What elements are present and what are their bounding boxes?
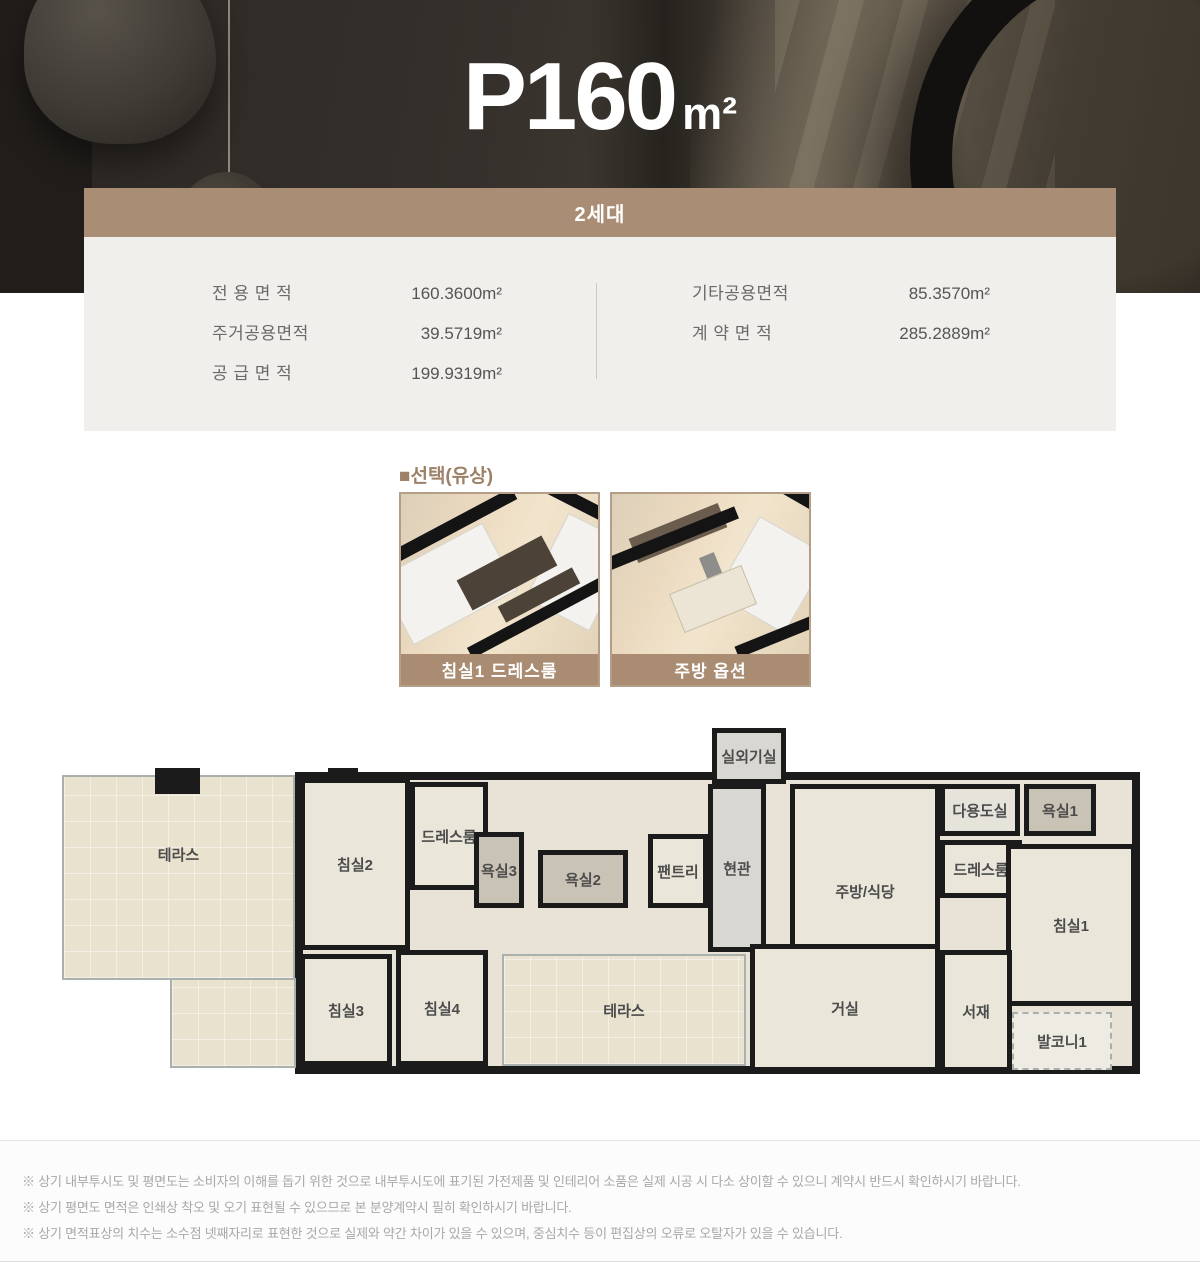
area-label: 전 용 면 적	[212, 279, 292, 304]
room-label: 발코니1	[1037, 1031, 1087, 1052]
room-label: 욕실3	[481, 860, 517, 881]
room-침실1: 침실1	[1006, 844, 1136, 1006]
room-발코니1: 발코니1	[1012, 1012, 1112, 1070]
area-label: 주거공용면적	[212, 319, 309, 344]
area-label: 기타공용면적	[692, 279, 789, 304]
area-table: 전 용 면 적160.3600m²주거공용면적39.5719m²공 급 면 적1…	[84, 237, 1116, 431]
room-욕실3: 욕실3	[474, 832, 524, 908]
room-label: 침실4	[424, 998, 460, 1019]
room-label: 욕실1	[1042, 800, 1078, 821]
unit-count-header: 2세대	[84, 188, 1116, 237]
room-침실2: 침실2	[300, 778, 410, 950]
room-label: 테라스	[603, 1000, 644, 1021]
room-label: 침실2	[337, 854, 373, 875]
room-서재: 서재	[940, 950, 1012, 1072]
page-title-main: P160	[463, 43, 675, 150]
room-label: 침실3	[328, 1000, 364, 1021]
room-label: 팬트리	[657, 861, 698, 882]
room-실외기실: 실외기실	[712, 728, 786, 784]
room-침실4: 침실4	[396, 950, 488, 1066]
room-label: 침실1	[1053, 915, 1089, 936]
floorplan: 테라스침실2드레스룸욕실3욕실2팬트리현관실외기실주방/식당다용도실드레스룸욕실…	[50, 722, 1150, 1087]
room-label: 서재	[962, 1001, 990, 1022]
option-card-kitchen[interactable]: 주방 옵션	[610, 492, 811, 687]
room-욕실1: 욕실1	[1024, 784, 1096, 836]
option-label: 침실1 드레스룸	[401, 654, 598, 685]
room-테라스: 테라스	[502, 954, 746, 1066]
option-label: 주방 옵션	[612, 654, 809, 685]
area-row: 전 용 면 적160.3600m²	[212, 279, 502, 304]
room-label: 주방/식당	[835, 881, 894, 902]
area-label: 계 약 면 적	[692, 319, 772, 344]
room-다용도실: 다용도실	[940, 784, 1020, 836]
option-render-kitchen	[612, 494, 809, 654]
render-island	[669, 565, 757, 633]
wall-column-block	[155, 768, 200, 794]
room-label: 욕실2	[565, 869, 601, 890]
page-title: P160m²	[0, 42, 1200, 152]
room-label: 드레스룸	[421, 826, 476, 847]
disclaimer-note: ※ 상기 내부투시도 및 평면도는 소비자의 이해를 돕기 위한 것으로 내부투…	[22, 1169, 1176, 1195]
area-value: 285.2889m²	[899, 324, 990, 344]
area-row: 계 약 면 적285.2889m²	[692, 319, 990, 344]
option-card-bedroom1-dressroom[interactable]: 침실1 드레스룸	[399, 492, 600, 687]
room-테라스: 테라스	[62, 775, 295, 980]
options-section-title: ■선택(유상)	[399, 461, 493, 488]
page-title-unit: m²	[682, 88, 737, 139]
area-value: 160.3600m²	[411, 284, 502, 304]
page: P160m² 2세대 전 용 면 적160.3600m²주거공용면적39.571…	[0, 0, 1200, 1262]
room-label: 테라스	[158, 844, 199, 865]
disclaimer-note: ※ 상기 평면도 면적은 인쇄상 착오 및 오기 표현될 수 있으므로 본 분양…	[22, 1195, 1176, 1221]
area-info-card: 2세대 전 용 면 적160.3600m²주거공용면적39.5719m²공 급 …	[84, 188, 1116, 431]
footer-disclaimers: ※ 상기 내부투시도 및 평면도는 소비자의 이해를 돕기 위한 것으로 내부투…	[0, 1140, 1200, 1262]
area-label: 공 급 면 적	[212, 359, 292, 384]
room-label: 거실	[831, 998, 859, 1019]
room-욕실2: 욕실2	[538, 850, 628, 908]
area-value: 39.5719m²	[421, 324, 502, 344]
area-row: 주거공용면적39.5719m²	[212, 319, 502, 344]
room-label: 다용도실	[952, 800, 1007, 821]
option-thumbnails: 침실1 드레스룸 주방 옵션	[399, 492, 811, 687]
area-value: 199.9319m²	[411, 364, 502, 384]
room-현관: 현관	[708, 784, 766, 952]
disclaimer-note: ※ 상기 면적표상의 치수는 소수점 넷째자리로 표현한 것으로 실제와 약간 …	[22, 1221, 1176, 1247]
wall-column-block	[328, 768, 358, 782]
room-label: 실외기실	[721, 746, 776, 767]
room-침실3: 침실3	[300, 954, 392, 1066]
room-label: 드레스룸	[953, 859, 1008, 880]
option-render-dressroom	[401, 494, 598, 654]
area-column-right: 기타공용면적85.3570m²계 약 면 적285.2889m²	[600, 237, 1116, 431]
area-value: 85.3570m²	[909, 284, 990, 304]
area-row: 기타공용면적85.3570m²	[692, 279, 990, 304]
room-area	[170, 978, 296, 1068]
column-divider	[596, 283, 597, 379]
room-팬트리: 팬트리	[648, 834, 708, 908]
room-거실: 거실	[750, 944, 940, 1072]
room-label: 현관	[723, 858, 751, 879]
area-column-left: 전 용 면 적160.3600m²주거공용면적39.5719m²공 급 면 적1…	[84, 237, 600, 431]
area-row: 공 급 면 적199.9319m²	[212, 359, 502, 384]
